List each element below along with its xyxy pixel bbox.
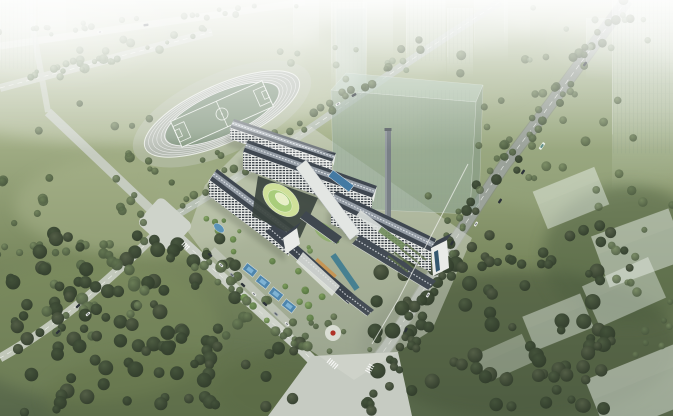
red-sculpture: [330, 330, 335, 335]
scene-svg: [0, 0, 673, 416]
aerial-architectural-rendering: [0, 0, 673, 416]
atmosphere: [0, 0, 673, 150]
